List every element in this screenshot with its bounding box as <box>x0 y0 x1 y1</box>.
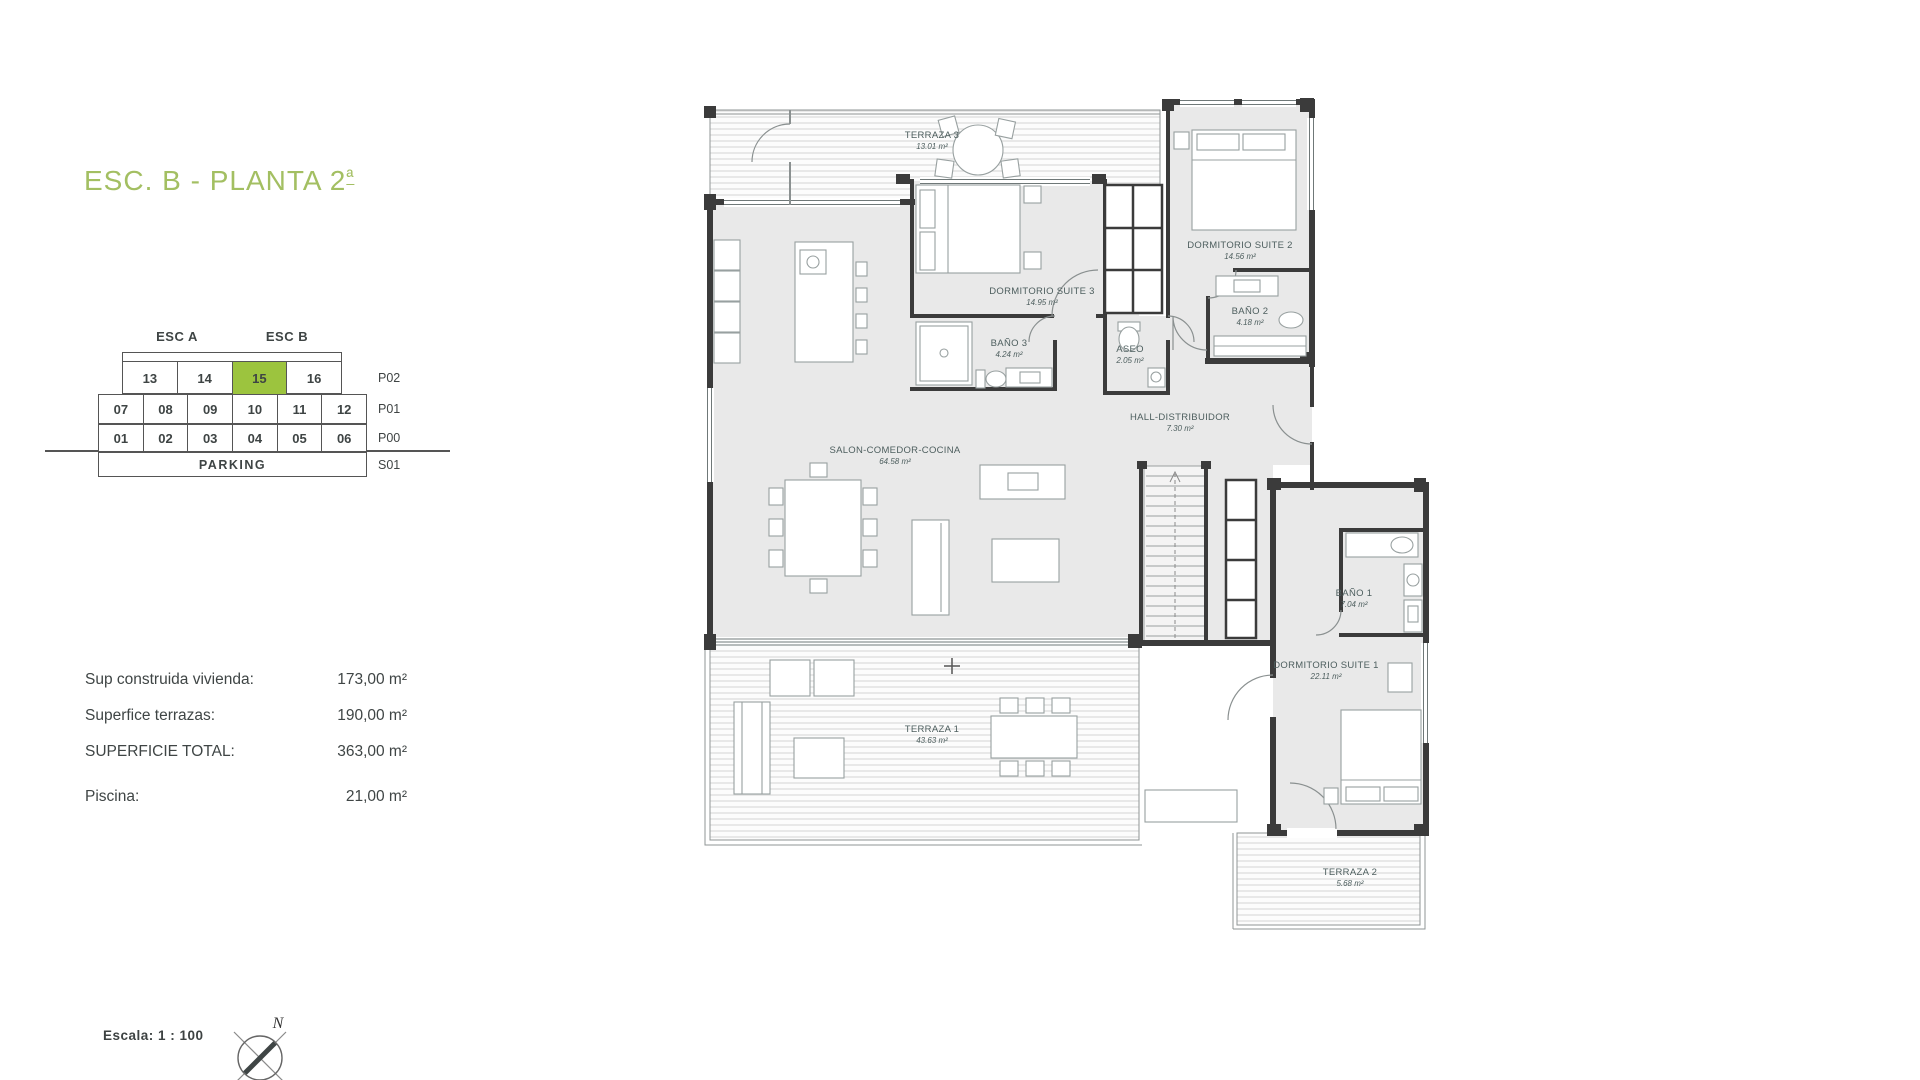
surface-value: 190,00 m² <box>337 707 407 725</box>
floorplan: TERRAZA 313.01 m² DORMITORIO SUITE 314.9… <box>690 90 1450 940</box>
staircase <box>1144 466 1206 642</box>
surface-row-vivienda: Sup construida vivienda: 173,00 m² <box>85 671 407 689</box>
floorplan-drawing <box>690 90 1450 940</box>
unit-cell-06[interactable]: 06 <box>321 425 366 451</box>
surface-value: 173,00 m² <box>337 671 407 689</box>
floor-label-p00: P00 <box>378 431 400 445</box>
surface-row-terrazas: Superfice terrazas: 190,00 m² <box>85 707 407 725</box>
unit-cell-01[interactable]: 01 <box>99 425 143 451</box>
page: ESC. B - PLANTA 2ª ESC A ESC B 13 14 15 … <box>0 0 1920 1080</box>
unit-grid-floor-p01: 07 08 09 10 11 12 <box>98 394 367 424</box>
stair-a-header: ESC A <box>156 329 198 344</box>
unit-cell-05[interactable]: 05 <box>277 425 322 451</box>
surface-label: Sup construida vivienda: <box>85 671 254 689</box>
stair-b-header: ESC B <box>266 329 308 344</box>
unit-cell-07[interactable]: 07 <box>99 395 143 423</box>
floor-label-p01: P01 <box>378 402 400 416</box>
unit-grid-floor-s01: PARKING <box>98 452 367 477</box>
unit-cell-10[interactable]: 10 <box>232 395 277 423</box>
unit-cell-02[interactable]: 02 <box>143 425 188 451</box>
unit-cell-12[interactable]: 12 <box>321 395 366 423</box>
unit-cell-04[interactable]: 04 <box>232 425 277 451</box>
surface-row-total: SUPERFICIE TOTAL: 363,00 m² <box>85 743 407 761</box>
grid-roof-strip <box>123 353 341 362</box>
scale-label: Escala: 1 : 100 <box>103 1028 204 1043</box>
unit-cell-11[interactable]: 11 <box>277 395 322 423</box>
floor-label-p02: P02 <box>378 371 400 385</box>
north-letter: N <box>272 1015 285 1032</box>
unit-grid-floor-p00: 01 02 03 04 05 06 <box>98 424 367 452</box>
parking-cell[interactable]: PARKING <box>99 453 366 476</box>
unit-grid-floor-p02: 13 14 15 16 <box>122 352 342 394</box>
surface-value: 363,00 m² <box>337 743 407 761</box>
ordinal-suffix: ª <box>346 167 354 188</box>
unit-cell-09[interactable]: 09 <box>187 395 232 423</box>
surface-label: Piscina: <box>85 788 139 806</box>
unit-cell-14[interactable]: 14 <box>177 362 232 394</box>
north-compass-icon: N <box>222 1012 300 1080</box>
floor-label-s01: S01 <box>378 458 400 472</box>
surface-label: Superfice terrazas: <box>85 707 215 725</box>
page-title: ESC. B - PLANTA 2ª <box>84 165 354 197</box>
unit-cell-13[interactable]: 13 <box>123 362 177 394</box>
unit-cell-08[interactable]: 08 <box>143 395 188 423</box>
unit-cell-16[interactable]: 16 <box>286 362 341 394</box>
unit-cell-15-selected[interactable]: 15 <box>232 362 287 394</box>
surface-row-piscina: Piscina: 21,00 m² <box>85 788 407 806</box>
surface-value: 21,00 m² <box>346 788 407 806</box>
unit-cell-03[interactable]: 03 <box>187 425 232 451</box>
surface-label: SUPERFICIE TOTAL: <box>85 743 235 761</box>
